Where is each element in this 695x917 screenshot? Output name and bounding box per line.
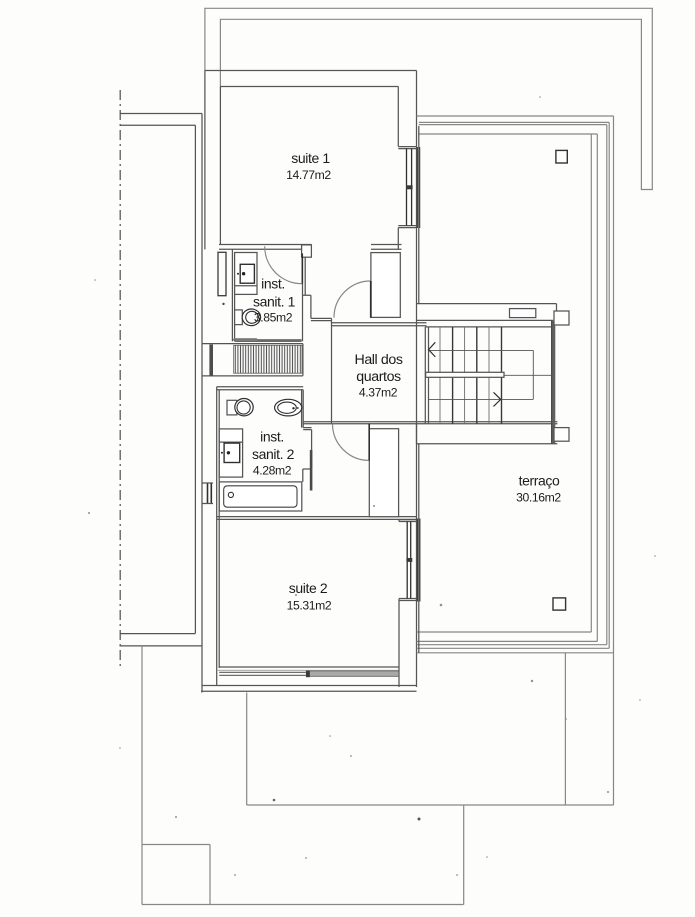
svg-text:15.31m2: 15.31m2 [287, 599, 332, 613]
svg-text:suite 1: suite 1 [291, 150, 330, 166]
svg-text:inst.: inst. [261, 276, 285, 292]
svg-text:quartos: quartos [356, 369, 401, 385]
svg-text:sanit. 1: sanit. 1 [253, 294, 296, 310]
svg-text:sanit. 2: sanit. 2 [252, 446, 295, 462]
svg-text:suite 2: suite 2 [289, 580, 328, 596]
svg-text:Hall dos: Hall dos [354, 352, 402, 368]
svg-text:3.85m2: 3.85m2 [254, 311, 293, 325]
svg-text:4.28m2: 4.28m2 [253, 464, 292, 478]
svg-text:30.16m2: 30.16m2 [516, 491, 561, 505]
svg-text:14.77m2: 14.77m2 [286, 168, 331, 182]
svg-text:inst.: inst. [260, 429, 284, 445]
svg-text:terraço: terraço [519, 473, 560, 489]
svg-text:4.37m2: 4.37m2 [359, 386, 398, 400]
